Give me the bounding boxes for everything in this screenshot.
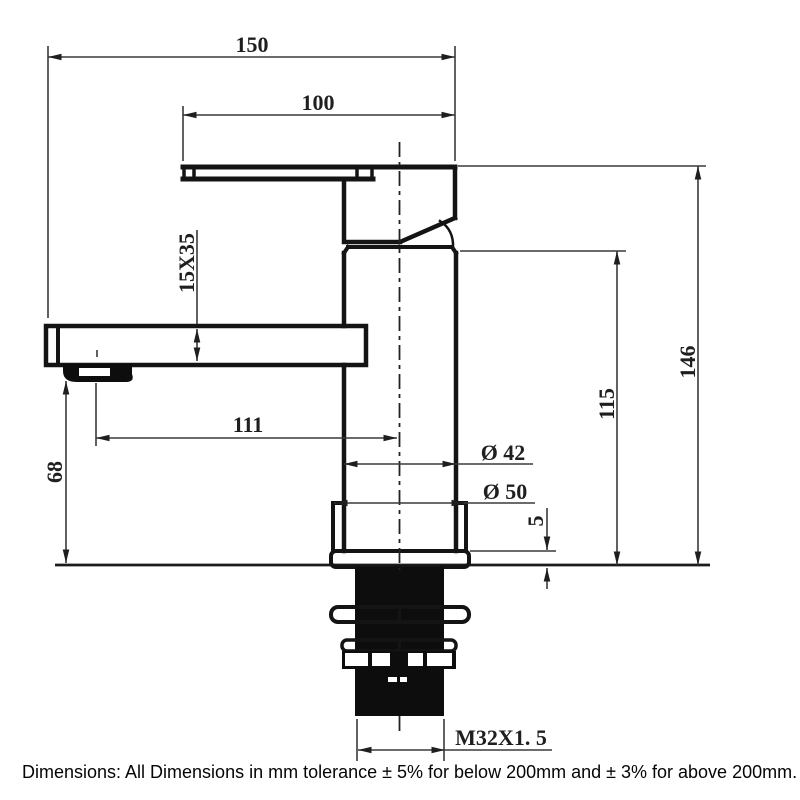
dim-spout-reach-label: 111 — [233, 412, 264, 437]
dim-handle-length: 100 — [183, 90, 455, 161]
spout — [46, 326, 366, 382]
dim-base-plate-thickness: 5 — [470, 508, 556, 589]
aerator-outlet — [63, 364, 133, 382]
dim-base-diameter-label: Ø 50 — [483, 479, 528, 504]
dim-overall-height-label: 146 — [675, 346, 700, 379]
dim-thread-size-label: M32X1. 5 — [455, 725, 547, 750]
dim-base-diameter: Ø 50 — [334, 479, 535, 504]
technical-drawing: 150 100 15X35 111 68 146 — [0, 0, 800, 800]
dim-thread-size: M32X1. 5 — [357, 719, 552, 761]
dim-overall-width: 150 — [48, 32, 455, 318]
centerline-dash-on-shaft — [400, 677, 407, 682]
drawing-canvas: 150 100 15X35 111 68 146 — [0, 0, 800, 800]
dim-spout-section-label: 15X35 — [174, 233, 199, 293]
dim-spout-reach: 111 — [96, 383, 397, 446]
dim-spout-clearance: 68 — [42, 381, 67, 563]
dim-body-height-label: 115 — [594, 388, 619, 420]
tolerance-note: Dimensions: All Dimensions in mm toleran… — [22, 762, 792, 783]
centerline-dash-on-shaft — [388, 677, 397, 682]
dim-spout-clearance-label: 68 — [42, 461, 67, 483]
dim-overall-height: 146 — [458, 166, 706, 565]
dim-base-plate-thickness-label: 5 — [523, 516, 548, 527]
dim-overall-width-label: 150 — [236, 32, 269, 57]
dim-handle-length-label: 100 — [302, 90, 335, 115]
dim-body-diameter-label: Ø 42 — [481, 440, 526, 465]
dim-spout-section: 15X35 — [174, 230, 199, 361]
dim-body-diameter: Ø 42 — [344, 440, 533, 465]
handle-lever — [183, 167, 455, 179]
